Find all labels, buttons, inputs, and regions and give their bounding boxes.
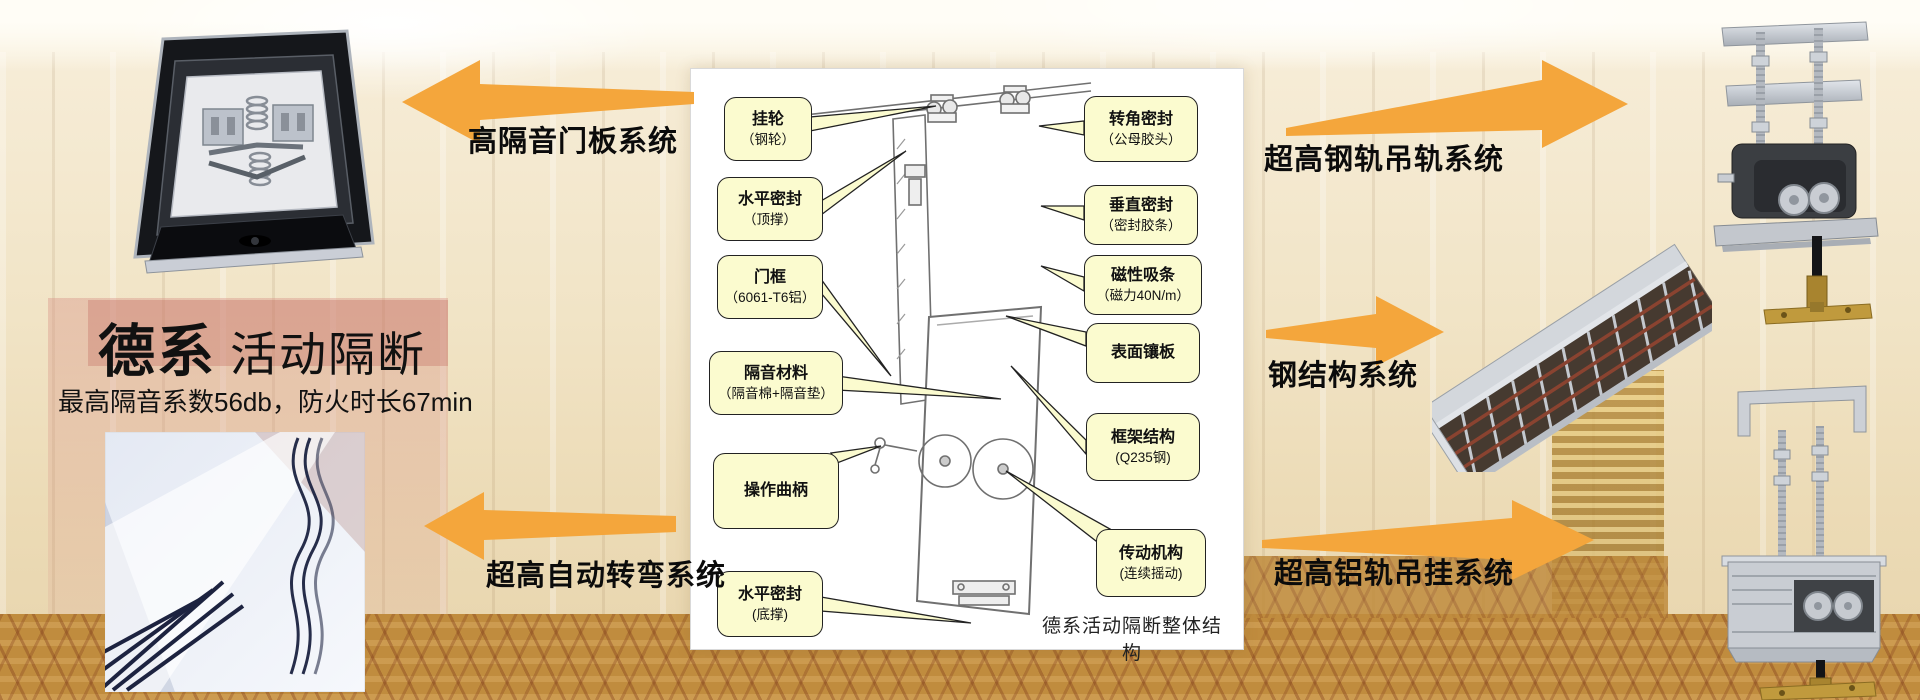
callout-operating-crank: 操作曲柄 xyxy=(713,453,839,529)
steel-structure-photo xyxy=(1432,232,1712,472)
partition-head-mechanism-photo xyxy=(105,5,395,305)
callout-transmission-mechanism: 传动机构 (连续摇动) xyxy=(1096,529,1206,597)
label-aluminum-rail-system: 超高铝轨吊挂系统 xyxy=(1274,550,1514,592)
label-steel-structure-system: 钢结构系统 xyxy=(1268,352,1418,394)
callout-sound-insulation-material: 隔音材料 （隔音棉+隔音垫） xyxy=(709,351,843,415)
callout-horizontal-seal-bottom: 水平密封 (底撑) xyxy=(717,571,823,637)
page-title: 德系 活动隔断 xyxy=(98,306,426,388)
structure-diagram-panel: 挂轮 （钢轮） 水平密封 （顶撑） 门框 （6061-T6铝） 隔音材料 （隔音… xyxy=(690,68,1244,650)
label-steel-rail-system: 超高钢轨吊轨系统 xyxy=(1264,136,1504,178)
product-subtitle: 最高隔音系数56db，防火时长67min xyxy=(58,382,473,419)
page: { "hero": { "title_bold": "德系", "title_r… xyxy=(0,0,1920,700)
label-auto-turning-system: 超高自动转弯系统 xyxy=(486,552,726,594)
curved-track-photo xyxy=(105,432,365,692)
callout-vertical-seal: 垂直密封 （密封胶条） xyxy=(1084,185,1198,245)
callout-frame-structure: 框架结构 (Q235钢) xyxy=(1086,413,1200,481)
aluminum-rail-carrier-photo xyxy=(1702,380,1902,700)
steel-rail-carrier-photo xyxy=(1698,4,1898,334)
product-name: 活动隔断 xyxy=(230,316,426,385)
label-door-panel-system: 高隔音门板系统 xyxy=(468,118,678,160)
brand-name: 德系 xyxy=(98,306,216,388)
diagram-caption: 德系活动隔断整体结构 xyxy=(1037,611,1227,665)
callout-surface-panel: 表面镶板 xyxy=(1086,323,1200,383)
callout-magnetic-strip: 磁性吸条 （磁力40N/m） xyxy=(1084,255,1202,315)
callout-corner-seal: 转角密封 （公母胶头） xyxy=(1084,96,1198,162)
callout-horizontal-seal-top: 水平密封 （顶撑） xyxy=(717,177,823,241)
callout-hanging-wheel: 挂轮 （钢轮） xyxy=(724,97,812,161)
left-arrow-auto-turning-icon xyxy=(424,488,676,562)
callout-door-frame: 门框 （6061-T6铝） xyxy=(717,255,823,319)
